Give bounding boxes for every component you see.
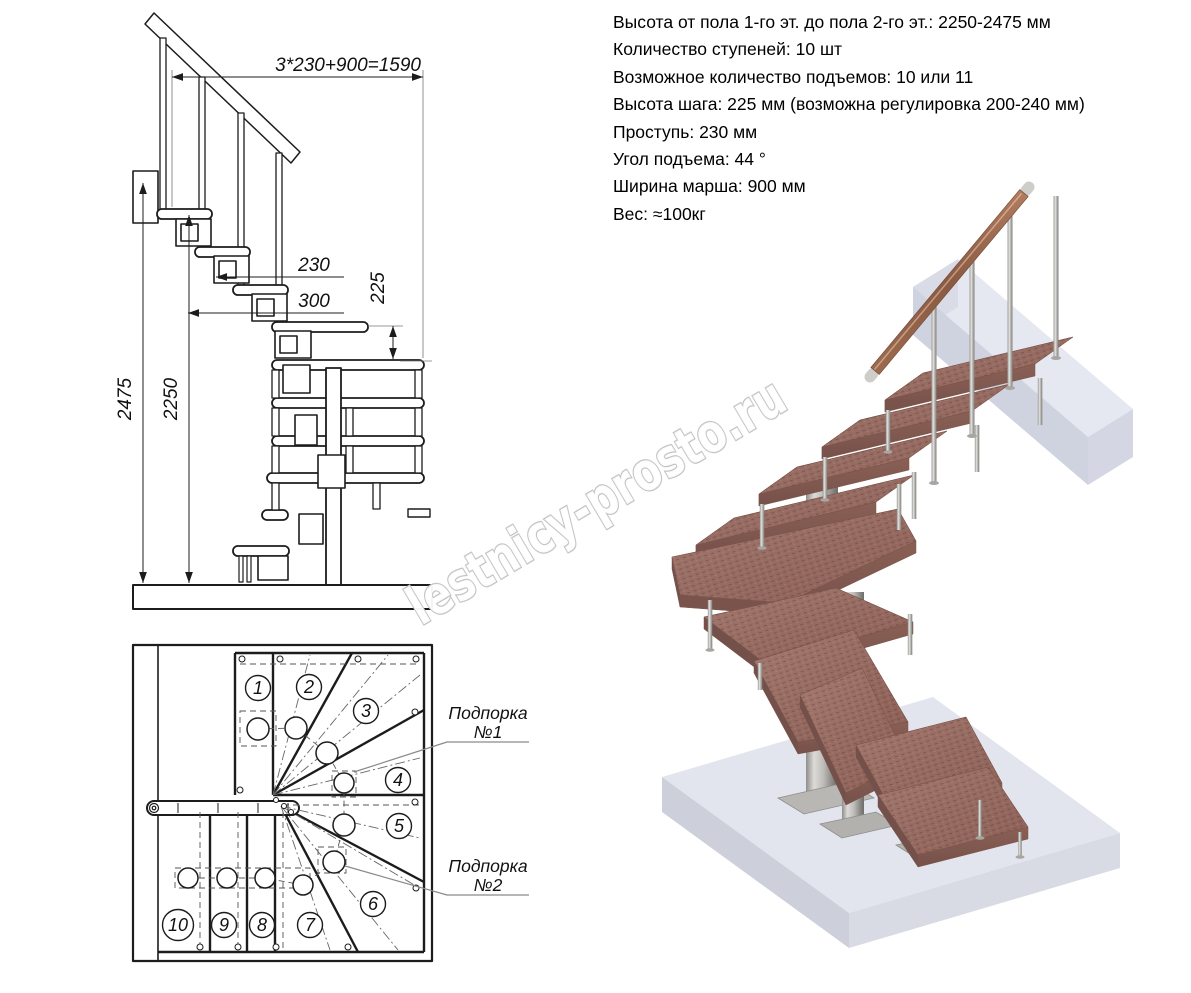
- spec-line-width: Ширина марша: 900 мм: [613, 173, 1173, 200]
- step-label-10: 10: [168, 915, 188, 935]
- step-label-1: 1: [253, 678, 263, 698]
- render-3d: [662, 187, 1133, 948]
- step-label-2: 2: [303, 677, 314, 697]
- step-label-6: 6: [368, 894, 379, 914]
- dim-rise-225: 225: [368, 272, 389, 305]
- dim-tread-230: 230: [297, 255, 330, 276]
- step-label-9: 9: [219, 915, 229, 935]
- spec-line-step-height: Высота шага: 225 мм (возможна регулировк…: [613, 91, 1173, 118]
- support-callout-2: Подпорка №2: [345, 856, 529, 895]
- support1-line2: №1: [474, 722, 503, 742]
- step-label-4: 4: [393, 770, 403, 790]
- support1-line1: Подпорка: [448, 703, 527, 723]
- dim-height-2475: 2475: [115, 377, 136, 421]
- elevation-floor: [133, 585, 432, 609]
- spec-line-steps: Количество ступеней: 10 шт: [613, 36, 1173, 63]
- elevation-bottom-step: [233, 546, 289, 582]
- wall-bracket: [133, 171, 158, 223]
- step-label-3: 3: [361, 701, 371, 721]
- step-label-5: 5: [394, 816, 405, 836]
- spec-line-angle: Угол подъема: 44 °: [613, 146, 1173, 173]
- support2-line1: Подпорка: [448, 856, 527, 876]
- support2-line2: №2: [474, 875, 503, 895]
- staircase-spec-sheet: 3*230+900=1590 230 300 225 2475 2250: [0, 0, 1191, 993]
- step-label-8: 8: [257, 915, 267, 935]
- specs-panel: Высота от пола 1-го эт. до пола 2-го эт.…: [613, 9, 1173, 228]
- plan-drawing: 1 2 3 4 5 6 7 8 9 10 Подпорка №1 Подпорк…: [133, 645, 529, 961]
- spec-line-rises: Возможное количество подъемов: 10 или 11: [613, 64, 1173, 91]
- elevation-drawing: 3*230+900=1590 230 300 225 2475 2250: [115, 13, 432, 609]
- spec-line-weight: Вес: ≈100кг: [613, 201, 1173, 228]
- step-label-7: 7: [305, 915, 316, 935]
- support-callout-1: Подпорка №1: [354, 703, 529, 772]
- plan-handrail: [147, 801, 299, 815]
- elevation-handrail: [145, 13, 300, 163]
- spec-line-going: Проступь: 230 мм: [613, 119, 1173, 146]
- dim-height-2250: 2250: [161, 377, 182, 421]
- dim-depth-300: 300: [298, 291, 330, 312]
- spec-line-height: Высота от пола 1-го эт. до пола 2-го эт.…: [613, 9, 1173, 36]
- dim-total-length: 3*230+900=1590: [275, 55, 421, 76]
